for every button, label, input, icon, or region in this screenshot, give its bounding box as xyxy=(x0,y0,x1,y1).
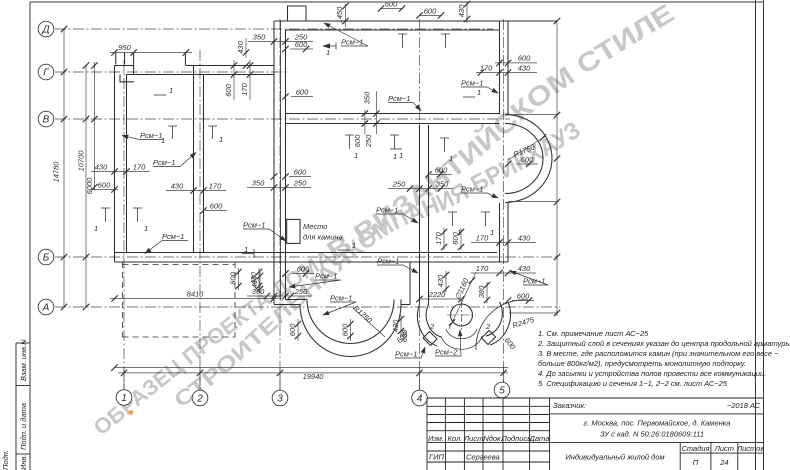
svg-text:Лист: Лист xyxy=(463,434,483,443)
svg-text:Изм.: Изм. xyxy=(428,434,444,443)
svg-text:24: 24 xyxy=(719,458,728,467)
svg-text:Рсм−1: Рсм−1 xyxy=(315,272,337,281)
svg-text:1: 1 xyxy=(121,393,127,404)
svg-text:600: 600 xyxy=(353,134,362,147)
svg-text:1. См. примечание лист АС−25: 1. См. примечание лист АС−25 xyxy=(538,329,649,338)
svg-text:430: 430 xyxy=(236,40,245,53)
svg-text:430: 430 xyxy=(457,4,466,17)
svg-text:6000: 6000 xyxy=(85,177,94,195)
svg-text:600: 600 xyxy=(295,40,308,49)
svg-text:Дата: Дата xyxy=(529,434,550,443)
svg-text:Подп. и дата: Подп. и дата xyxy=(19,403,28,450)
svg-text:−2018 АС: −2018 АС xyxy=(727,401,761,410)
svg-text:1: 1 xyxy=(326,48,330,57)
svg-text:3: 3 xyxy=(277,394,283,405)
svg-text:г. Москва, пос. Первомайское,: г. Москва, пос. Первомайское, д. Каменка xyxy=(584,419,731,428)
svg-text:8410: 8410 xyxy=(187,290,205,299)
svg-text:3. В месте, где расположится: 3. В месте, где расположится камин (при … xyxy=(538,349,779,358)
svg-text:1: 1 xyxy=(490,228,494,237)
svg-text:5. Спецификацию и сечения 1−1: 5. Спецификацию и сечения 1−1, 2−2 см. л… xyxy=(538,379,728,388)
svg-text:2. Защитный слой в сечениях у: 2. Защитный слой в сечениях указан до це… xyxy=(537,339,790,348)
svg-text:ГИП: ГИП xyxy=(429,452,444,461)
svg-text:Индивидуальный жилой дом: Индивидуальный жилой дом xyxy=(565,453,664,462)
svg-text:350: 350 xyxy=(252,179,265,188)
svg-text:4. До засыпки и устройства по: 4. До засыпки и устройства полов провест… xyxy=(538,369,766,378)
svg-text:430: 430 xyxy=(518,234,531,243)
svg-text:250: 250 xyxy=(364,134,373,148)
svg-text:1450: 1450 xyxy=(335,6,344,24)
svg-text:Б: Б xyxy=(43,253,50,264)
svg-text:600: 600 xyxy=(518,54,531,63)
svg-text:430: 430 xyxy=(436,274,445,287)
svg-text:170: 170 xyxy=(133,163,146,172)
svg-text:600: 600 xyxy=(294,168,307,177)
svg-text:Д: Д xyxy=(41,25,49,36)
svg-text:ЗУ с кад. N 50:26:0180609:111: ЗУ с кад. N 50:26:0180609:111 xyxy=(600,429,704,438)
svg-text:больше 800кг/м2), предусмотрет: больше 800кг/м2), предусмотреть монолитн… xyxy=(538,359,746,368)
svg-text:2220: 2220 xyxy=(428,290,447,299)
svg-text:1: 1 xyxy=(244,245,248,254)
svg-text:600: 600 xyxy=(98,181,111,190)
svg-text:600: 600 xyxy=(224,83,233,96)
svg-text:Кол.: Кол. xyxy=(448,434,463,443)
svg-text:Nдок.: Nдок. xyxy=(483,434,502,443)
svg-text:Подп.: Подп. xyxy=(1,450,10,470)
svg-text:1: 1 xyxy=(399,151,403,160)
svg-text:10700: 10700 xyxy=(77,150,86,172)
svg-text:430: 430 xyxy=(518,264,531,273)
svg-text:19940: 19940 xyxy=(303,372,325,381)
svg-text:600: 600 xyxy=(297,265,310,274)
svg-text:1: 1 xyxy=(477,88,481,97)
svg-text:600: 600 xyxy=(400,329,409,342)
svg-text:А: А xyxy=(42,303,50,314)
svg-text:П: П xyxy=(693,458,699,467)
svg-text:1: 1 xyxy=(219,135,223,144)
svg-text:2: 2 xyxy=(485,322,491,331)
svg-text:Рсм−1: Рсм−1 xyxy=(376,206,398,215)
svg-text:Рсм−2: Рсм−2 xyxy=(435,348,458,357)
svg-text:250: 250 xyxy=(294,287,308,296)
svg-text:Рсм−1: Рсм−1 xyxy=(395,350,417,359)
svg-text:430: 430 xyxy=(250,275,259,288)
svg-text:170: 170 xyxy=(480,64,493,73)
svg-text:950: 950 xyxy=(118,43,131,52)
svg-text:1: 1 xyxy=(169,86,173,95)
svg-text:Рсм−1: Рсм−1 xyxy=(162,232,184,241)
svg-text:250: 250 xyxy=(293,179,307,188)
svg-text:Подпись: Подпись xyxy=(501,434,531,443)
svg-text:1: 1 xyxy=(449,154,453,163)
svg-text:350: 350 xyxy=(363,91,372,104)
svg-text:600: 600 xyxy=(288,323,297,336)
svg-text:Взам. инв.N: Взам. инв.N xyxy=(19,339,28,381)
svg-text:600: 600 xyxy=(521,155,534,164)
svg-text:Лист: Лист xyxy=(714,444,734,453)
svg-text:350: 350 xyxy=(253,33,266,42)
svg-text:Место: Место xyxy=(303,222,327,231)
svg-text:430: 430 xyxy=(391,319,400,332)
svg-text:Сергеева: Сергеева xyxy=(466,452,500,461)
svg-text:380: 380 xyxy=(477,285,486,298)
svg-text:170: 170 xyxy=(434,231,443,244)
svg-text:Рсм−1: Рсм−1 xyxy=(461,185,483,194)
svg-text:170: 170 xyxy=(209,182,222,191)
svg-text:2: 2 xyxy=(196,394,203,405)
svg-text:430: 430 xyxy=(518,64,531,73)
svg-text:Инв.: Инв. xyxy=(19,455,28,470)
svg-text:1: 1 xyxy=(161,136,165,145)
svg-text:1: 1 xyxy=(94,224,98,233)
svg-text:Рсм−1: Рсм−1 xyxy=(461,79,483,88)
svg-text:для камина: для камина xyxy=(303,233,343,242)
svg-text:1: 1 xyxy=(393,152,397,161)
svg-text:600: 600 xyxy=(229,271,238,284)
svg-text:170: 170 xyxy=(240,82,249,95)
svg-text:Стадия: Стадия xyxy=(681,444,709,453)
svg-text:600: 600 xyxy=(424,7,437,16)
svg-text:600: 600 xyxy=(296,88,309,97)
svg-text:Рсм−1: Рсм−1 xyxy=(523,277,545,286)
svg-text:2: 2 xyxy=(429,322,435,331)
svg-text:250: 250 xyxy=(392,180,406,189)
svg-text:Рсм−1: Рсм−1 xyxy=(388,94,410,103)
svg-text:1: 1 xyxy=(352,241,356,250)
svg-text:600: 600 xyxy=(210,202,223,211)
svg-text:600: 600 xyxy=(517,292,530,301)
svg-text:170: 170 xyxy=(476,234,489,243)
svg-text:1: 1 xyxy=(144,224,148,233)
svg-text:600: 600 xyxy=(341,323,350,336)
svg-text:Заказчик:: Заказчик: xyxy=(553,401,586,410)
svg-text:Рсм−1: Рсм−1 xyxy=(377,257,399,266)
svg-text:1: 1 xyxy=(354,151,358,160)
svg-text:600: 600 xyxy=(385,0,398,9)
svg-text:600: 600 xyxy=(435,166,448,175)
svg-text:170: 170 xyxy=(476,264,489,273)
svg-text:4: 4 xyxy=(417,394,423,405)
svg-text:Рсм−1: Рсм−1 xyxy=(140,131,162,140)
svg-text:430: 430 xyxy=(95,163,108,172)
svg-text:Рсм−1: Рсм−1 xyxy=(243,221,265,230)
svg-text:Листов: Листов xyxy=(736,444,764,453)
svg-text:14780: 14780 xyxy=(52,161,61,183)
svg-text:350: 350 xyxy=(436,180,449,189)
svg-text:Рсм−1: Рсм−1 xyxy=(341,38,363,47)
svg-text:5: 5 xyxy=(499,386,505,397)
svg-text:Рсм−1: Рсм−1 xyxy=(330,294,352,303)
svg-text:В: В xyxy=(43,115,50,126)
svg-text:1: 1 xyxy=(457,228,461,237)
svg-text:430: 430 xyxy=(171,182,184,191)
svg-text:Рсм−1: Рсм−1 xyxy=(153,158,175,167)
